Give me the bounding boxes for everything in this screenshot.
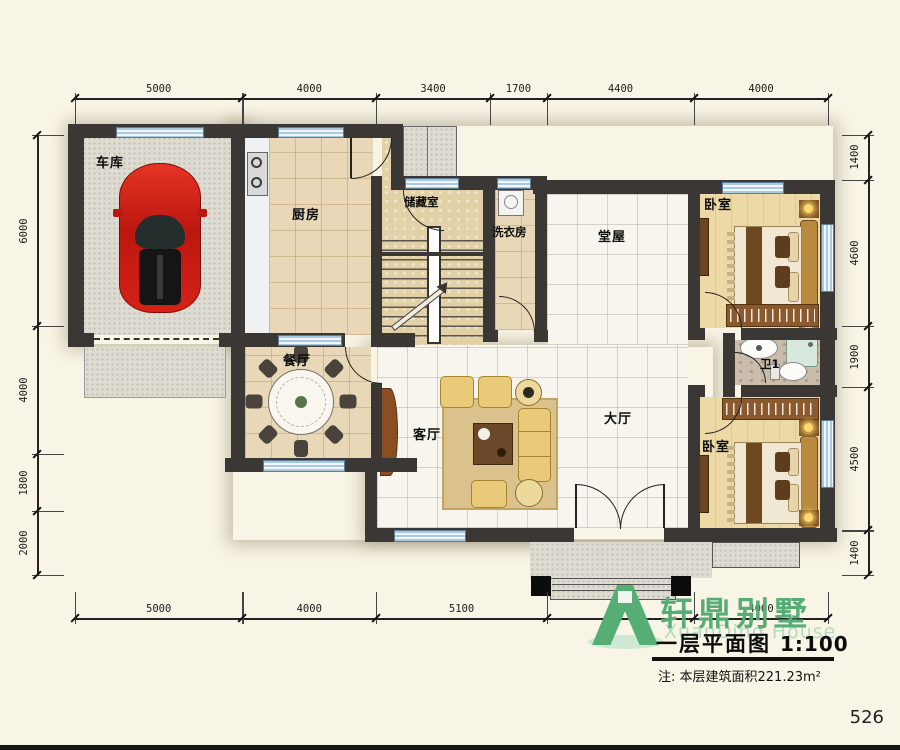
logo-house-notch — [618, 591, 632, 603]
wall-segment — [371, 176, 382, 347]
dimension-tick — [842, 530, 874, 531]
side-table-decor — [523, 387, 534, 398]
dimension-value: 4500 — [849, 427, 861, 491]
lamp — [804, 423, 813, 432]
window — [821, 224, 834, 292]
dimension-value: 6000 — [18, 199, 30, 263]
dimension-top: 500040003400170044004000 — [75, 98, 828, 100]
dimension-value: 1800 — [18, 451, 30, 515]
wall-segment — [68, 124, 84, 347]
plan-title-text: 一层平面图 — [656, 632, 771, 656]
room-label-central-hall: 堂屋 — [598, 226, 626, 245]
wall-segment — [381, 333, 415, 347]
dimension-tick — [75, 592, 76, 624]
washing-machine-drum — [504, 195, 518, 209]
door-leaf — [350, 138, 352, 178]
wall-segment — [391, 124, 403, 188]
bed-tassels — [727, 228, 735, 308]
wall-segment — [688, 180, 700, 340]
shower-drain — [808, 342, 813, 347]
coffee-table-decor — [497, 448, 506, 457]
window — [263, 460, 345, 472]
room-label-main-hall: 大厅 — [604, 408, 632, 427]
dimension-value: 4000 — [18, 358, 30, 422]
room-label-dining: 餐厅 — [283, 350, 311, 369]
window — [278, 127, 344, 138]
armchair — [440, 376, 474, 408]
dimension-tick — [842, 135, 874, 136]
dining-chair — [294, 440, 308, 457]
dimension-value: 4600 — [849, 221, 861, 285]
dimension-value: 1900 — [849, 325, 861, 389]
bottom-rule — [0, 745, 900, 750]
room-label-storage: 储藏室 — [404, 194, 439, 210]
wall-segment — [535, 180, 547, 342]
lamp — [804, 513, 813, 522]
dimension-tick — [842, 326, 874, 327]
area-note: 注: 本层建筑面积221.23m² — [658, 666, 821, 685]
sofa-seam — [518, 456, 551, 457]
side-table — [515, 479, 543, 507]
dimension-right: 14004600190045001400 — [868, 135, 870, 575]
stove-burner — [251, 157, 262, 168]
car-engine-detail — [157, 255, 163, 299]
dimension-tick — [828, 592, 829, 624]
wall-segment — [723, 333, 735, 397]
room-label-bath: 卫1 — [760, 356, 780, 372]
room-label-bedroom-top: 卧室 — [704, 194, 732, 213]
dimension-line — [868, 135, 870, 575]
car-windshield — [135, 215, 185, 249]
car — [113, 163, 208, 313]
bed-headboard — [800, 220, 818, 316]
page-number: 526 — [850, 707, 884, 728]
bed-tassels — [727, 444, 735, 522]
window — [394, 530, 466, 542]
room-label-bedroom-bottom: 卧室 — [702, 436, 730, 455]
wall-segment — [483, 188, 495, 342]
dining-chair — [340, 395, 357, 409]
room-label-kitchen: 厨房 — [292, 204, 320, 223]
wall-segment — [231, 124, 245, 347]
plan-scale: 1:100 — [780, 632, 849, 656]
room-label-living: 客厅 — [413, 424, 441, 443]
wall-segment — [688, 528, 837, 542]
dimension-value: 5100 — [376, 603, 547, 615]
sofa — [518, 408, 551, 482]
throw-pillow — [775, 266, 790, 288]
wall-segment — [688, 397, 700, 528]
stair-cut-line — [382, 252, 483, 256]
sink-drain — [756, 345, 762, 351]
dimension-line — [75, 98, 828, 100]
dimension-left: 6000400018002000 — [37, 135, 39, 575]
window — [722, 182, 784, 194]
toilet-bowl — [779, 362, 807, 381]
armchair — [471, 480, 507, 508]
throw-pillow — [775, 452, 790, 472]
stove-burner — [251, 177, 262, 188]
bed-runner — [746, 443, 762, 523]
wall-segment — [231, 347, 245, 472]
side-porch — [403, 126, 457, 180]
wall-segment — [533, 180, 835, 194]
car-mirror — [113, 209, 123, 217]
wall-segment — [365, 458, 377, 542]
door-leaf — [663, 484, 665, 528]
dimension-value: 4000 — [242, 603, 376, 615]
front-porch — [530, 542, 712, 578]
central-hall-floor — [547, 194, 688, 345]
lamp — [804, 204, 813, 213]
stair-treads — [382, 232, 427, 342]
window — [821, 420, 834, 488]
wardrobe-hangers — [730, 309, 815, 322]
door-leaf — [575, 484, 577, 528]
throw-pillow — [775, 480, 790, 500]
garage-door-dashed — [94, 338, 219, 340]
dimension-value: 5000 — [75, 83, 242, 95]
dimension-value: 4000 — [694, 83, 828, 95]
room-label-laundry: 洗衣房 — [492, 224, 527, 240]
dimension-tick — [242, 592, 243, 624]
title-underline — [652, 657, 834, 661]
brand-logo-icon — [592, 585, 658, 649]
dimension-value: 4000 — [242, 83, 376, 95]
window — [497, 178, 531, 189]
throw-pillow — [775, 236, 790, 258]
dimension-tick — [842, 575, 874, 576]
dimension-value: 4400 — [547, 83, 694, 95]
coffee-table-plate — [478, 428, 490, 440]
dining-chair — [246, 395, 263, 409]
armchair — [478, 376, 512, 408]
bed-runner — [746, 227, 762, 309]
side-porch-line — [427, 127, 428, 177]
dining-centerpiece — [295, 396, 307, 408]
plan-title: 一层平面图1:100 — [656, 628, 849, 658]
room-label-garage: 车库 — [96, 152, 124, 171]
bedroom-porch — [712, 542, 800, 568]
dimension-tick — [376, 592, 377, 624]
dimension-value: 2000 — [18, 511, 30, 575]
window — [116, 127, 204, 138]
wall-segment — [688, 385, 705, 397]
car-mirror — [197, 209, 207, 217]
window — [278, 335, 342, 346]
dimension-value: 5000 — [75, 603, 242, 615]
dimension-value: 1700 — [490, 83, 547, 95]
sofa-seam — [518, 431, 551, 432]
window — [405, 178, 459, 189]
dimension-value: 3400 — [376, 83, 490, 95]
driveway — [84, 347, 226, 398]
